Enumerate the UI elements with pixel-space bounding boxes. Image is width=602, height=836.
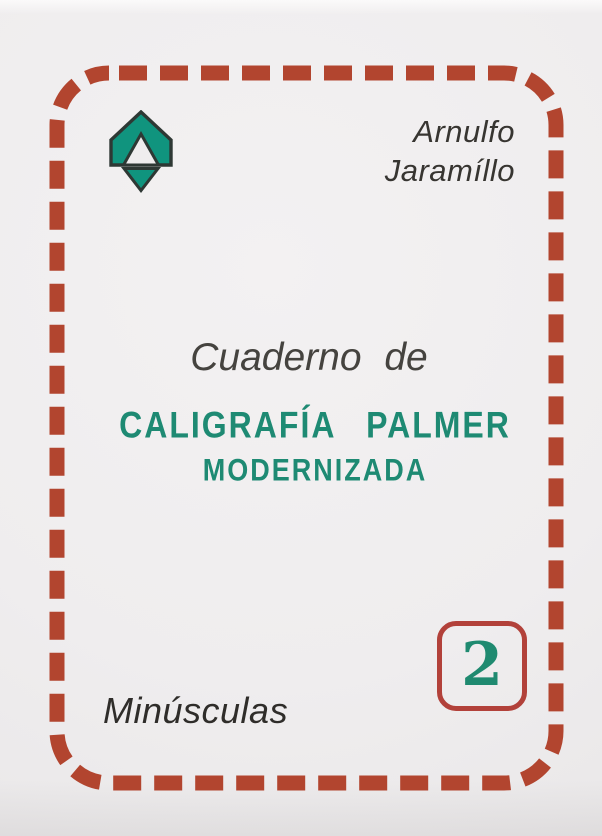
volume-badge: 2 [437, 621, 527, 711]
book-cover: Arnulfo Jaramíllo Cuaderno de CALIGRAFÍA… [0, 0, 602, 836]
author-name: Arnulfo Jaramíllo [0, 112, 515, 190]
series-label: Cuaderno de [8, 336, 602, 380]
title-line-1: CALIGRAFÍA PALMER [14, 404, 602, 447]
author-last-name: Jaramíllo [0, 151, 515, 190]
title-line-2: MODERNIZADA [14, 453, 602, 489]
volume-number: 2 [461, 635, 503, 695]
author-first-name: Arnulfo [0, 112, 515, 151]
subtitle: Minúsculas [103, 690, 288, 732]
